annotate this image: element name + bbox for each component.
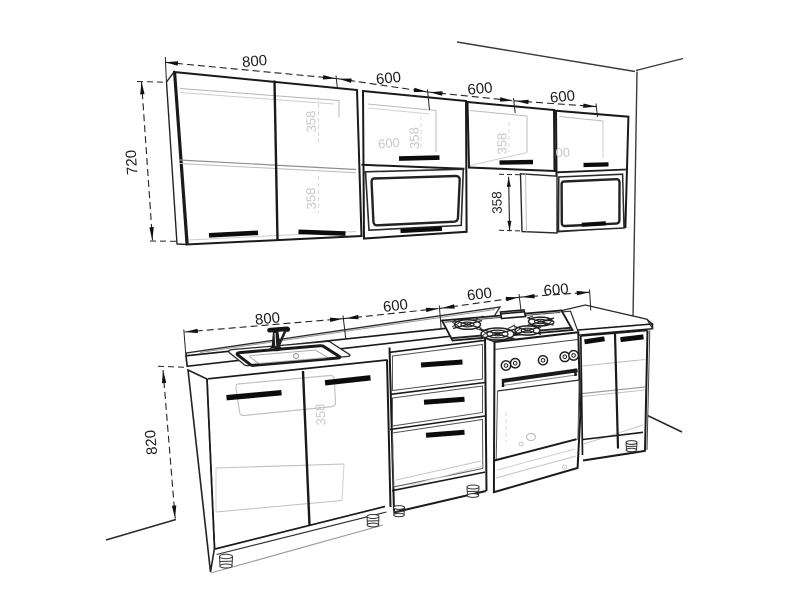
- svg-text:720: 720: [123, 149, 142, 175]
- svg-text:358: 358: [312, 403, 328, 425]
- svg-text:358: 358: [406, 127, 422, 149]
- svg-text:820: 820: [142, 429, 161, 455]
- svg-text:358: 358: [494, 133, 509, 155]
- svg-text:800: 800: [241, 52, 267, 71]
- svg-text:600: 600: [543, 280, 569, 299]
- svg-text:600: 600: [377, 135, 400, 152]
- svg-text:358: 358: [303, 187, 319, 209]
- svg-text:600: 600: [467, 79, 494, 99]
- svg-text:600: 600: [382, 296, 409, 316]
- svg-text:600: 600: [549, 87, 576, 107]
- svg-text:600: 600: [466, 285, 493, 305]
- svg-text:600: 600: [375, 69, 402, 89]
- svg-text:800: 800: [254, 309, 281, 329]
- svg-text:358: 358: [303, 110, 319, 132]
- svg-text:358: 358: [489, 191, 504, 214]
- svg-text:00: 00: [555, 144, 570, 160]
